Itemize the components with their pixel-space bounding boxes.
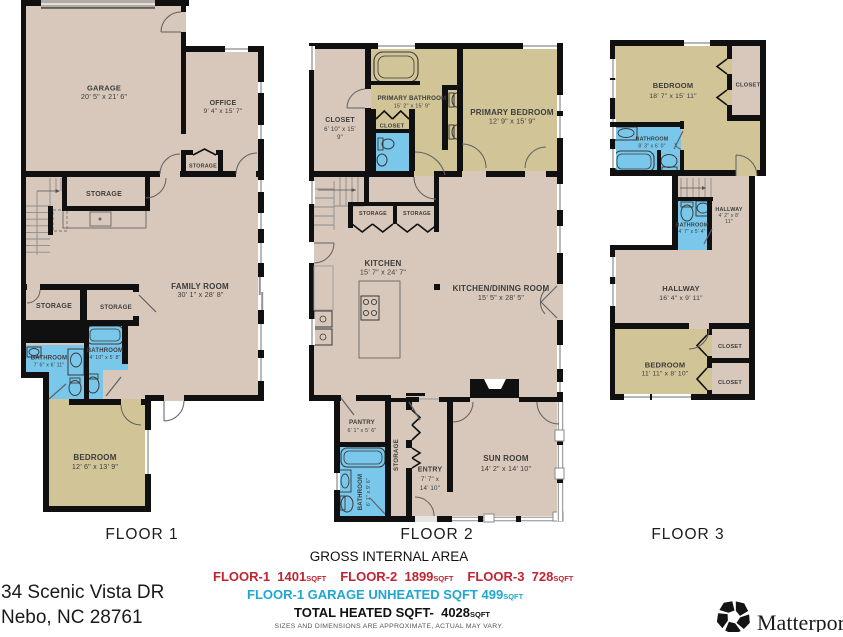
svg-text:6’ 1" x 9’ 6": 6’ 1" x 9’ 6" xyxy=(366,478,372,506)
svg-text:FLOOR 3: FLOOR 3 xyxy=(651,526,724,543)
svg-text:30’ 1" x 28’ 8": 30’ 1" x 28’ 8" xyxy=(177,290,224,299)
svg-text:STORAGE: STORAGE xyxy=(100,304,132,311)
svg-text:BEDROOM: BEDROOM xyxy=(73,453,116,462)
svg-text:SIZES AND DIMENSIONS ARE APPRO: SIZES AND DIMENSIONS ARE APPROXIMATE, AC… xyxy=(275,623,504,630)
svg-text:11’ 11" x 8’ 10": 11’ 11" x 8’ 10" xyxy=(642,371,689,378)
svg-text:16’ 4" x 9’ 11": 16’ 4" x 9’ 11" xyxy=(659,295,703,302)
svg-text:FLOOR 1: FLOOR 1 xyxy=(105,526,178,543)
svg-text:FLOOR-1 1401SQFTFLOOR-2 1899: FLOOR-1 1401SQFTFLOOR-2 1899SQFTFLOOR-3 … xyxy=(213,569,574,584)
svg-text:6’ 10" x 15’: 6’ 10" x 15’ xyxy=(324,127,356,133)
svg-text:34 Scenic Vista DR: 34 Scenic Vista DR xyxy=(1,582,164,603)
svg-text:STORAGE: STORAGE xyxy=(86,191,122,198)
svg-text:STORAGE: STORAGE xyxy=(393,439,400,471)
svg-text:BEDROOM: BEDROOM xyxy=(653,81,694,90)
svg-text:Nebo, NC 28761: Nebo, NC 28761 xyxy=(1,607,143,628)
svg-text:7’ 6" x 6’ 11": 7’ 6" x 6’ 11" xyxy=(34,363,65,369)
svg-text:18’ 7" x 15’ 11": 18’ 7" x 15’ 11" xyxy=(649,93,697,100)
svg-text:GROSS INTERNAL AREA: GROSS INTERNAL AREA xyxy=(310,549,469,564)
svg-text:CLOSET: CLOSET xyxy=(380,124,405,130)
svg-text:STORAGE: STORAGE xyxy=(189,164,217,170)
svg-text:TOTAL HEATED SQFT- 4028SQFT: TOTAL HEATED SQFT- 4028SQFT xyxy=(294,605,490,620)
svg-text:4’ 10" x 5’ 8": 4’ 10" x 5’ 8" xyxy=(89,355,120,361)
svg-text:7’ 7" x: 7’ 7" x xyxy=(421,476,440,483)
svg-text:14’ 10": 14’ 10" xyxy=(420,485,440,492)
svg-text:11": 11" xyxy=(725,219,733,225)
svg-text:PANTRY: PANTRY xyxy=(349,419,376,426)
svg-text:SUN ROOM: SUN ROOM xyxy=(483,454,529,463)
svg-text:CLOSET: CLOSET xyxy=(325,117,355,124)
svg-text:4’ 7" x 5’ 4": 4’ 7" x 5’ 4" xyxy=(678,229,705,235)
svg-text:STORAGE: STORAGE xyxy=(359,211,387,217)
svg-text:BATHROOM: BATHROOM xyxy=(87,348,123,354)
svg-text:20’ 5" x 21’ 6": 20’ 5" x 21’ 6" xyxy=(81,92,128,101)
svg-text:BATHROOM: BATHROOM xyxy=(31,356,67,362)
svg-text:9": 9" xyxy=(337,135,343,141)
svg-text:15’ 5" x 28’ 5": 15’ 5" x 28’ 5" xyxy=(478,293,525,302)
svg-text:15’ 7" x 24’ 7": 15’ 7" x 24’ 7" xyxy=(360,268,407,277)
svg-text:12’ 9" x 15’ 9": 12’ 9" x 15’ 9" xyxy=(489,117,536,126)
svg-text:CLOSET: CLOSET xyxy=(718,344,742,350)
svg-text:CLOSET: CLOSET xyxy=(736,83,761,89)
svg-text:FLOOR-1 GARAGE UNHEATED SQFT 4: FLOOR-1 GARAGE UNHEATED SQFT 499SQFT xyxy=(247,587,524,602)
svg-text:BATHROOM: BATHROOM xyxy=(358,474,364,510)
svg-text:BEDROOM: BEDROOM xyxy=(645,361,686,370)
svg-text:Matterport: Matterport xyxy=(757,610,843,632)
svg-text:CLOSET: CLOSET xyxy=(718,380,742,386)
svg-text:FLOOR 2: FLOOR 2 xyxy=(400,526,473,543)
svg-text:BATHROOM: BATHROOM xyxy=(676,223,709,229)
svg-text:ENTRY: ENTRY xyxy=(418,467,443,474)
svg-text:BATHROOM: BATHROOM xyxy=(636,137,669,143)
svg-text:9’ 4" x 15’ 7": 9’ 4" x 15’ 7" xyxy=(204,108,243,115)
svg-text:STORAGE: STORAGE xyxy=(36,303,72,310)
svg-text:OFFICE: OFFICE xyxy=(210,100,237,107)
svg-text:KITCHEN/DINING ROOM: KITCHEN/DINING ROOM xyxy=(453,284,550,293)
svg-text:HALLWAY: HALLWAY xyxy=(662,284,699,293)
svg-text:14’ 2" x 14’ 10": 14’ 2" x 14’ 10" xyxy=(481,464,532,473)
svg-text:12’ 6" x 13’ 9": 12’ 6" x 13’ 9" xyxy=(72,462,119,471)
svg-text:STORAGE: STORAGE xyxy=(403,211,431,217)
svg-text:PRIMARY BATHROOM: PRIMARY BATHROOM xyxy=(377,95,446,102)
svg-text:8’ 3" x 6’ 0": 8’ 3" x 6’ 0" xyxy=(638,144,665,150)
svg-text:15’ 2" x 15’ 9": 15’ 2" x 15’ 9" xyxy=(394,104,431,110)
svg-text:6’ 1" x 5’ 6": 6’ 1" x 5’ 6" xyxy=(347,428,376,434)
